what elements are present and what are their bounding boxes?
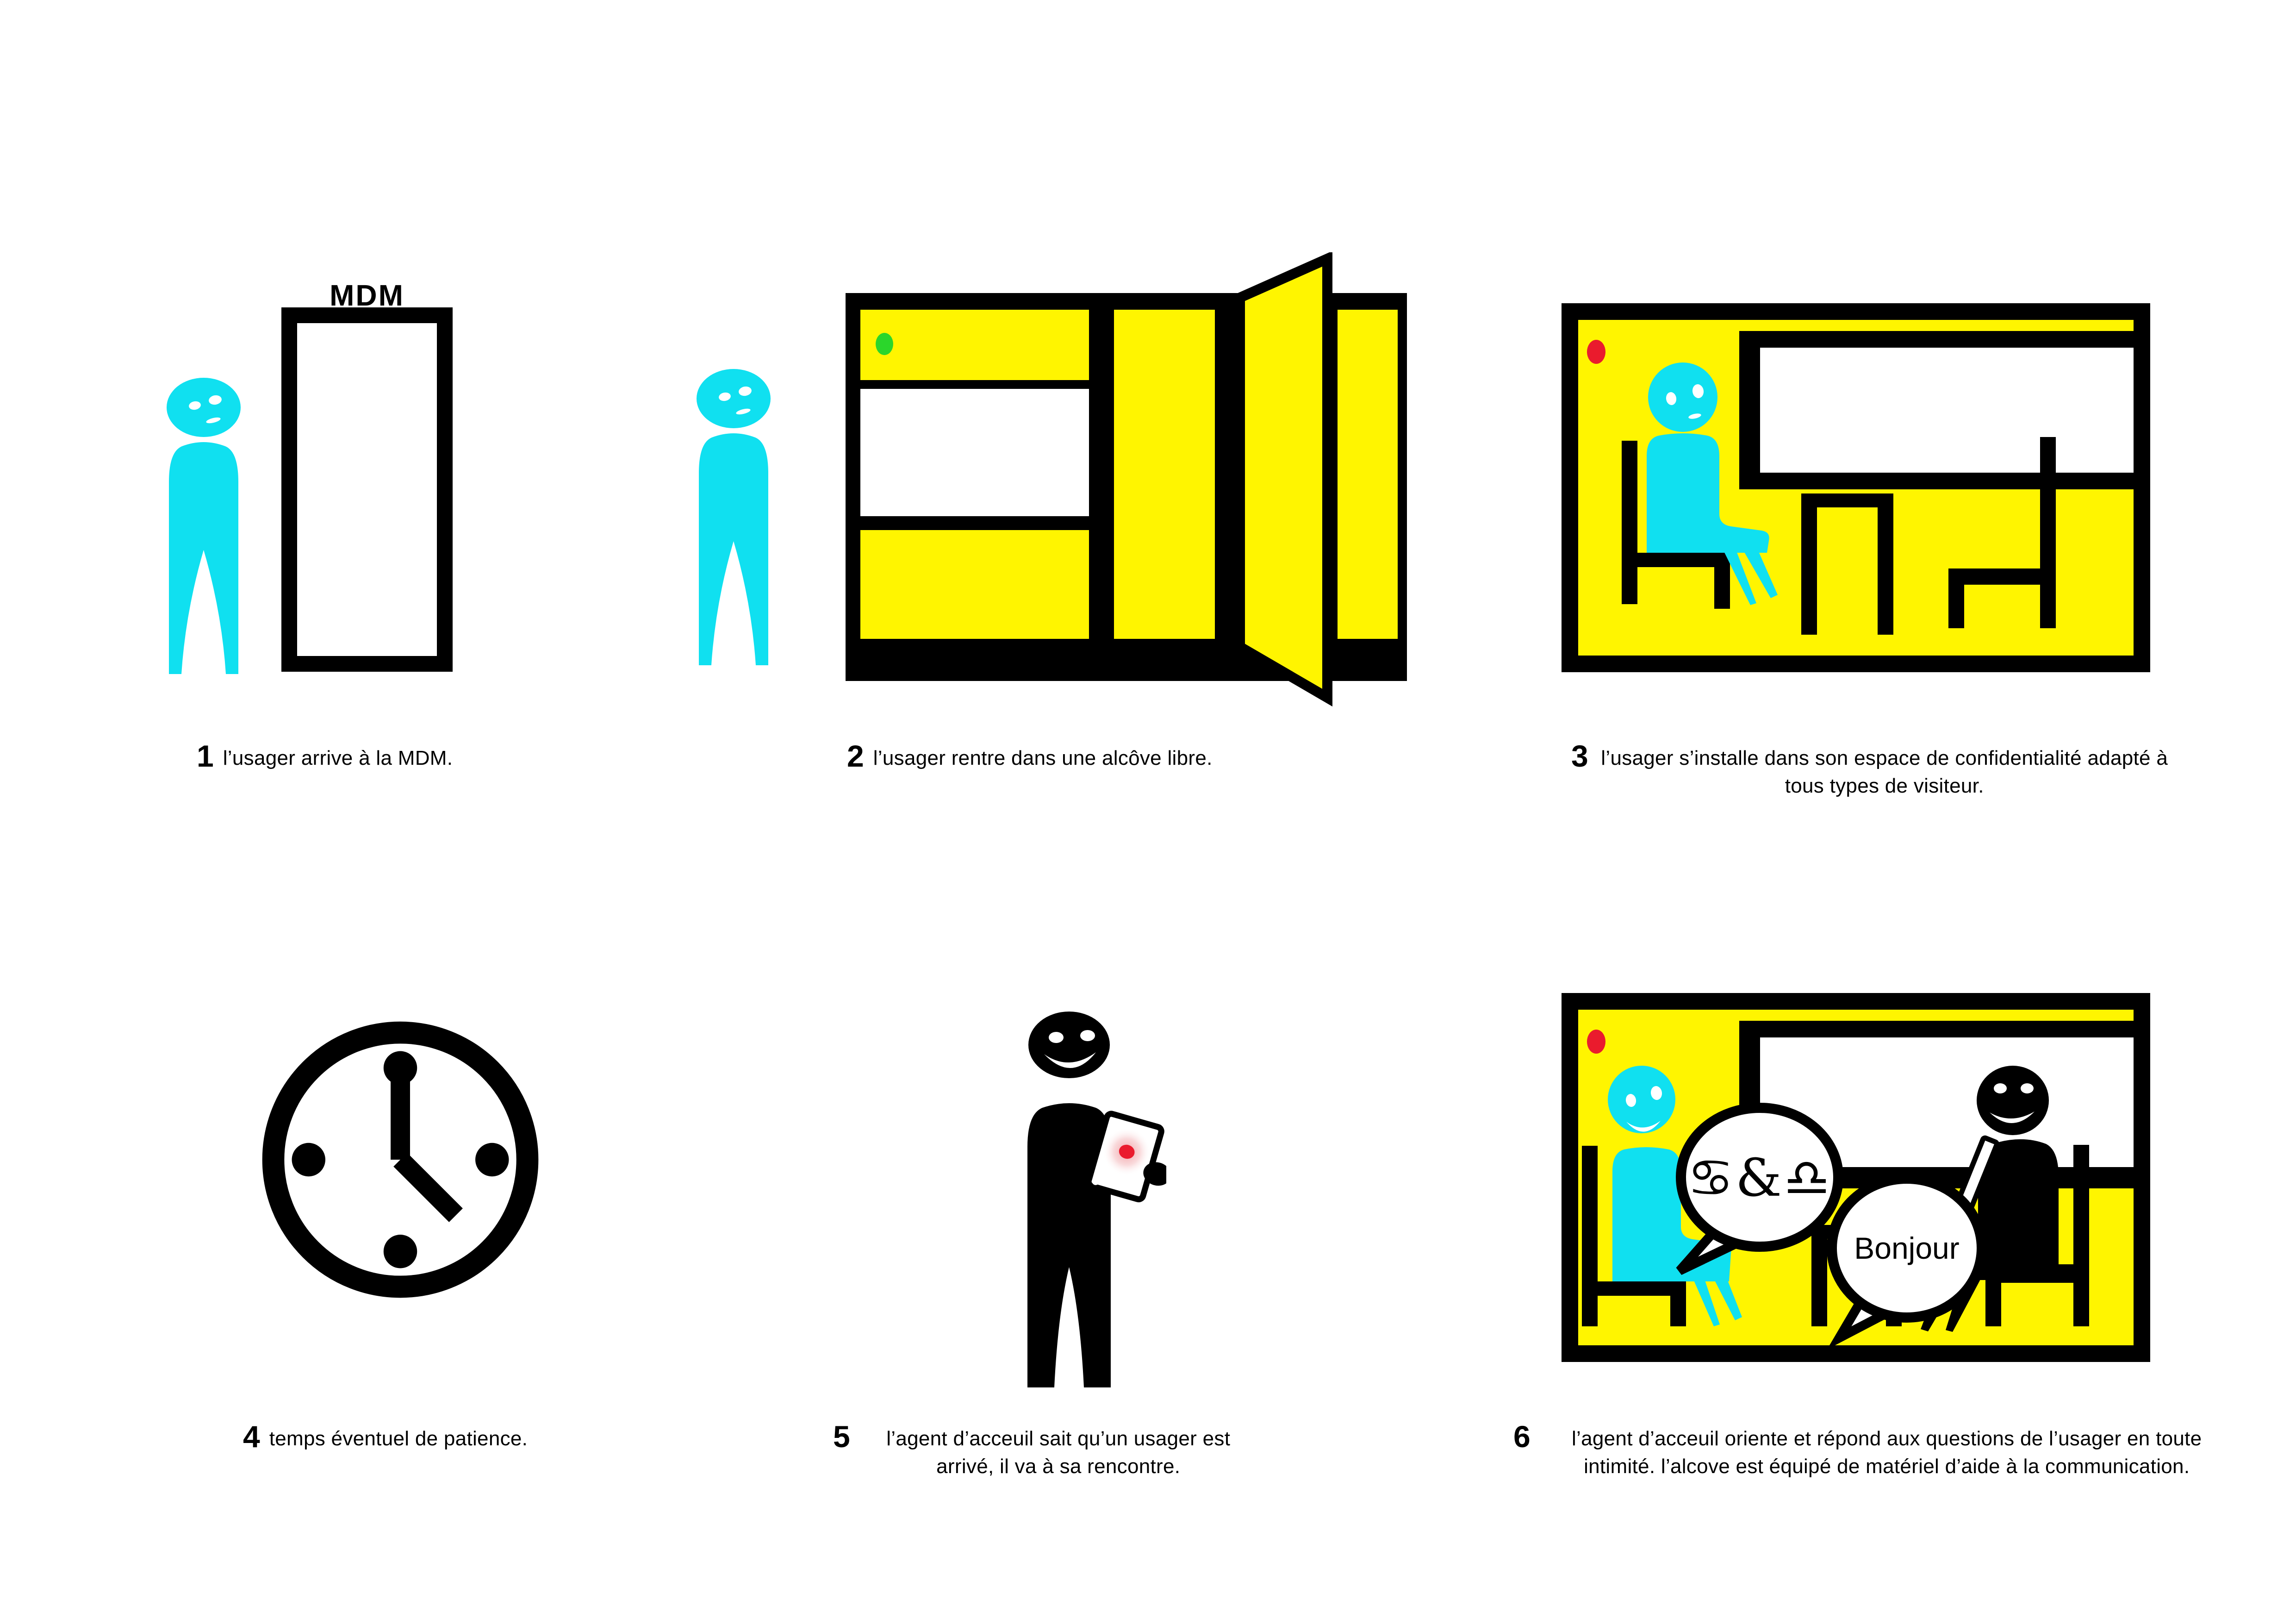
- room-icon: [1562, 303, 2150, 672]
- step2-caption-text: l’usager rentre dans une alcôve libre.: [873, 744, 1213, 772]
- step1-caption-text: l’usager arrive à la MDM.: [223, 744, 453, 772]
- process-diagram: MDM: [0, 0, 2296, 1624]
- door-icon: [289, 315, 445, 664]
- step2-number: 2: [847, 741, 864, 771]
- caption-step4: 4 temps éventuel de patience.: [243, 1425, 528, 1455]
- caption-step2: 2 l’usager rentre dans une alcôve libre.: [847, 744, 1213, 775]
- user-person-icon: [697, 369, 771, 665]
- step6-number: 6: [1513, 1421, 1531, 1452]
- step5-caption-text: l’agent d’acceuil sait qu’un usager est …: [859, 1425, 1257, 1480]
- occupied-status-dot: [1587, 1030, 1605, 1054]
- alcove-plan-icon: [846, 259, 1407, 698]
- mdm-sign-label: MDM: [330, 279, 404, 312]
- caption-step6: 6 l’agent d’acceuil oriente et répond au…: [1513, 1425, 2234, 1480]
- step4-number: 4: [243, 1421, 260, 1452]
- step3-caption-text: l’usager s’installe dans son espace de c…: [1598, 744, 2172, 800]
- caption-step3: 3 l’usager s’installe dans son espace de…: [1571, 744, 2172, 800]
- caption-step5: 5 l’agent d’acceuil sait qu’un usager es…: [833, 1425, 1257, 1480]
- figure-step5-agent-notified: [1014, 1008, 1166, 1387]
- whiteboard-icon: [1739, 331, 2150, 489]
- step3-number: 3: [1571, 741, 1588, 771]
- clock-hand-minute: [400, 1160, 456, 1215]
- figure-step2-alcove-entry: [648, 252, 1416, 715]
- agent-person-icon: [1027, 1012, 1111, 1387]
- sign-language-symbols: ♋&♎: [1687, 1148, 1832, 1208]
- greeting-text: Bonjour: [1854, 1231, 1960, 1265]
- figure-step3-confidential-room: [1562, 303, 2154, 674]
- occupied-status-dot: [1587, 340, 1605, 364]
- figure-step1-arrival: MDM: [157, 272, 463, 680]
- step4-caption-text: temps éventuel de patience.: [269, 1425, 528, 1453]
- step6-caption-text: l’agent d’acceuil oriente et répond aux …: [1540, 1425, 2234, 1480]
- step5-number: 5: [833, 1421, 850, 1452]
- step1-number: 1: [197, 741, 214, 771]
- free-status-dot: [876, 333, 893, 355]
- figure-step6-conversation: ♋&♎ Bonjour: [1562, 993, 2154, 1363]
- clock-icon: [274, 1033, 528, 1287]
- open-door-icon: [1240, 259, 1327, 698]
- user-person-icon: [167, 378, 241, 674]
- caption-step1: 1 l’usager arrive à la MDM.: [197, 744, 453, 775]
- room-icon: ♋&♎ Bonjour: [1562, 993, 2150, 1362]
- figure-step4-waiting: [259, 1018, 541, 1301]
